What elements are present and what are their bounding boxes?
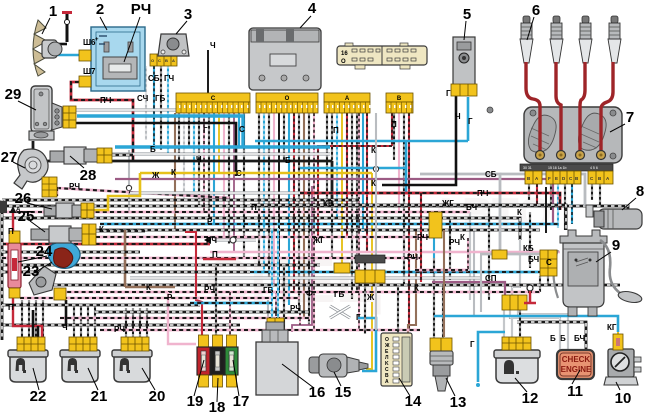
svg-text:Ч: Ч: [455, 112, 461, 121]
svg-text:4 5 6: 4 5 6: [590, 166, 598, 170]
svg-text:РЧ: РЧ: [114, 325, 125, 334]
svg-text:F: F: [548, 176, 551, 181]
svg-text:Ш6: Ш6: [83, 38, 96, 47]
svg-text:7: 7: [626, 109, 634, 126]
svg-text:А: А: [172, 58, 175, 63]
svg-text:2: 2: [96, 1, 104, 18]
svg-text:O: O: [341, 59, 346, 65]
svg-text:ГБ: ГБ: [334, 290, 345, 299]
svg-text:Б: Б: [285, 156, 291, 165]
svg-text:9: 9: [612, 237, 620, 254]
svg-text:12: 12: [522, 390, 539, 407]
svg-text:Р: Р: [167, 293, 173, 302]
svg-text:С: С: [239, 125, 245, 134]
svg-text:16: 16: [309, 384, 326, 401]
svg-text:3: 3: [184, 6, 192, 23]
svg-text:Ж: Ж: [151, 171, 160, 180]
svg-text:РЧ: РЧ: [131, 1, 152, 18]
svg-text:С: С: [546, 258, 552, 267]
svg-text:РЧ: РЧ: [290, 304, 301, 313]
svg-text:C: C: [211, 96, 216, 102]
svg-text:4: 4: [308, 0, 317, 17]
svg-text:П: П: [391, 120, 397, 129]
svg-text:22: 22: [30, 388, 47, 405]
svg-text:П: П: [333, 126, 339, 135]
svg-text:18: 18: [209, 399, 226, 416]
svg-text:15 16 1a 1b: 15 16 1a 1b: [548, 166, 567, 170]
svg-text:16: 16: [341, 51, 348, 57]
svg-text:6: 6: [532, 2, 540, 19]
svg-text:O: O: [285, 96, 290, 102]
svg-text:СП: СП: [485, 274, 497, 283]
svg-text:17: 17: [233, 393, 250, 410]
svg-text:Ч: Ч: [196, 155, 202, 164]
svg-text:РЧ: РЧ: [206, 236, 217, 245]
svg-text:К: К: [146, 283, 151, 292]
svg-text:B: B: [397, 96, 402, 102]
svg-text:КБ: КБ: [323, 199, 334, 208]
svg-text:Ч: Ч: [210, 41, 216, 50]
svg-text:26: 26: [15, 190, 32, 207]
svg-text:23: 23: [23, 263, 40, 280]
svg-text:25: 25: [18, 208, 35, 225]
svg-text:П: П: [251, 203, 257, 212]
svg-text:СЧ: СЧ: [137, 94, 149, 103]
svg-text:+: +: [95, 37, 99, 43]
svg-text:РЧ: РЧ: [417, 233, 428, 242]
svg-text:БЧ: БЧ: [528, 255, 539, 264]
svg-text:РЧ: РЧ: [449, 238, 460, 247]
svg-text:СБ: СБ: [148, 74, 160, 83]
svg-text:РЧ: РЧ: [69, 182, 80, 191]
svg-text:ЖГ: ЖГ: [441, 199, 454, 208]
svg-text:Г: Г: [470, 340, 475, 349]
svg-text:Г: Г: [468, 117, 473, 126]
svg-text:БЧ: БЧ: [466, 203, 477, 212]
svg-text:С: С: [236, 169, 242, 178]
svg-text:14: 14: [405, 393, 422, 410]
svg-text:10: 10: [615, 390, 632, 407]
svg-text:С: С: [158, 58, 161, 63]
svg-text:К: К: [517, 208, 522, 217]
svg-text:Ф: Ф: [306, 289, 313, 298]
svg-text:A: A: [345, 96, 350, 102]
svg-text:ГБ: ГБ: [155, 94, 166, 103]
svg-text:E: E: [555, 176, 558, 181]
svg-text:1: 1: [49, 3, 57, 20]
svg-text:A: A: [385, 379, 389, 385]
svg-text:Ш7: Ш7: [83, 67, 96, 76]
svg-text:ГБ: ГБ: [263, 286, 274, 295]
svg-text:П: П: [8, 227, 14, 236]
svg-text:ПЧ: ПЧ: [477, 189, 489, 198]
svg-text:Б: Б: [550, 334, 556, 343]
svg-text:Б: Б: [560, 334, 566, 343]
svg-text:13: 13: [450, 394, 467, 411]
svg-text:21: 21: [91, 388, 108, 405]
svg-text:ENGINE: ENGINE: [561, 365, 592, 374]
svg-text:8: 8: [636, 183, 644, 200]
svg-text:П: П: [212, 250, 218, 259]
svg-text:К: К: [414, 284, 419, 293]
svg-text:КБ: КБ: [523, 244, 534, 253]
svg-text:11: 11: [567, 383, 583, 400]
svg-text:Ж: Ж: [366, 293, 375, 302]
svg-text:ПЧ: ПЧ: [100, 96, 112, 105]
svg-text:ЖГ: ЖГ: [312, 236, 325, 245]
svg-text:К: К: [99, 225, 104, 234]
svg-text:СБ: СБ: [485, 170, 497, 179]
svg-text:Б: Б: [150, 145, 156, 154]
svg-text:30 31: 30 31: [523, 166, 532, 170]
svg-text:24: 24: [36, 243, 53, 260]
svg-text:Г: Г: [203, 126, 208, 135]
svg-text:К: К: [171, 168, 176, 177]
svg-text:В: В: [165, 58, 168, 63]
svg-text:Г: Г: [356, 313, 361, 322]
svg-text:29: 29: [5, 86, 22, 103]
svg-text:Ч: Ч: [62, 323, 68, 332]
svg-text:28: 28: [80, 167, 97, 184]
svg-text:РЧ: РЧ: [407, 253, 418, 262]
svg-text:К: К: [460, 233, 465, 242]
svg-text:27: 27: [1, 149, 18, 166]
svg-text:20: 20: [149, 388, 166, 405]
svg-text:15: 15: [335, 384, 352, 401]
svg-text:К: К: [371, 146, 376, 155]
svg-text:CHECK: CHECK: [562, 355, 591, 364]
svg-text:О: О: [151, 58, 154, 63]
svg-text:Р: Р: [207, 217, 213, 226]
svg-text:5: 5: [463, 6, 471, 23]
svg-text:БЧ: БЧ: [574, 334, 585, 343]
svg-text:К: К: [371, 179, 376, 188]
svg-text:П: П: [8, 303, 14, 312]
svg-text:КГ: КГ: [607, 323, 617, 332]
svg-text:Г: Г: [446, 89, 451, 98]
svg-text:РЧ: РЧ: [204, 285, 215, 294]
svg-text:ГЧ: ГЧ: [164, 74, 175, 83]
svg-text:19: 19: [187, 393, 204, 410]
